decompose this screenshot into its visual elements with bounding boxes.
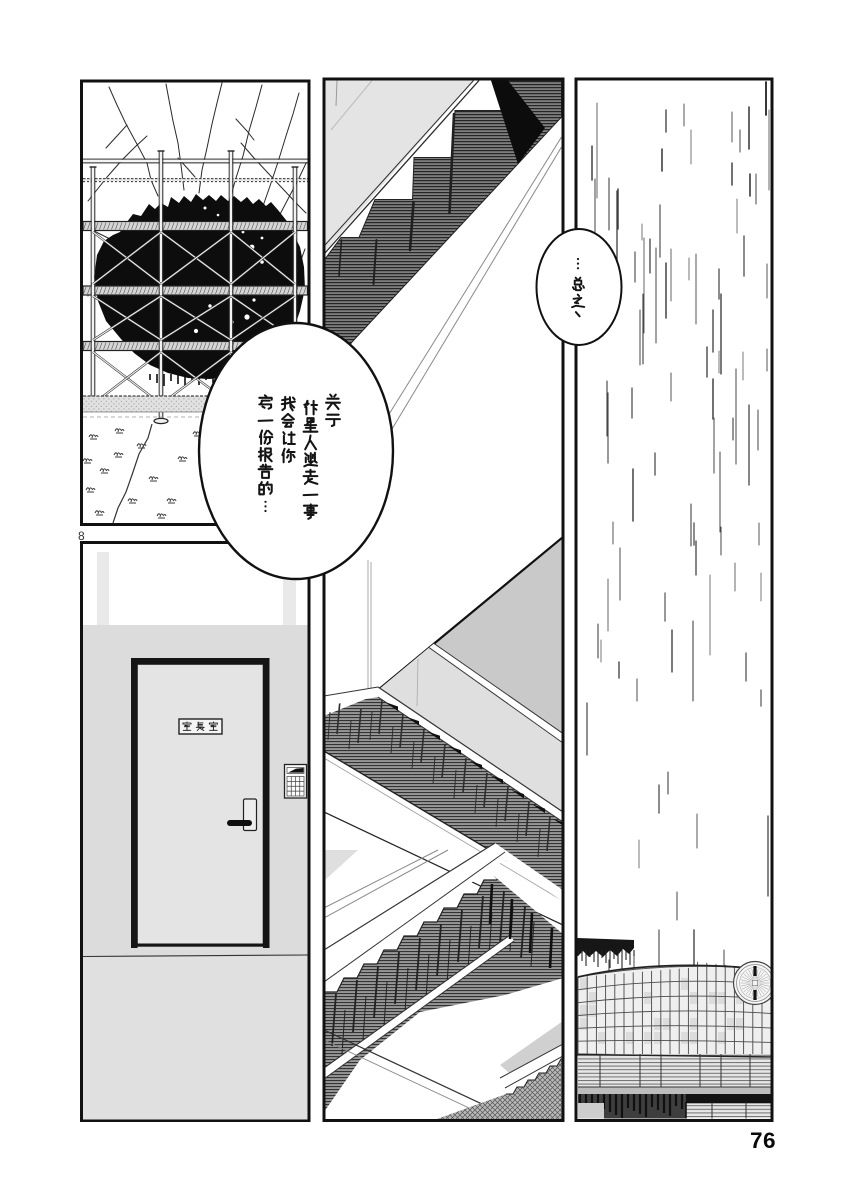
svg-text:8: 8 — [78, 529, 85, 543]
svg-text:76: 76 — [750, 1128, 776, 1153]
